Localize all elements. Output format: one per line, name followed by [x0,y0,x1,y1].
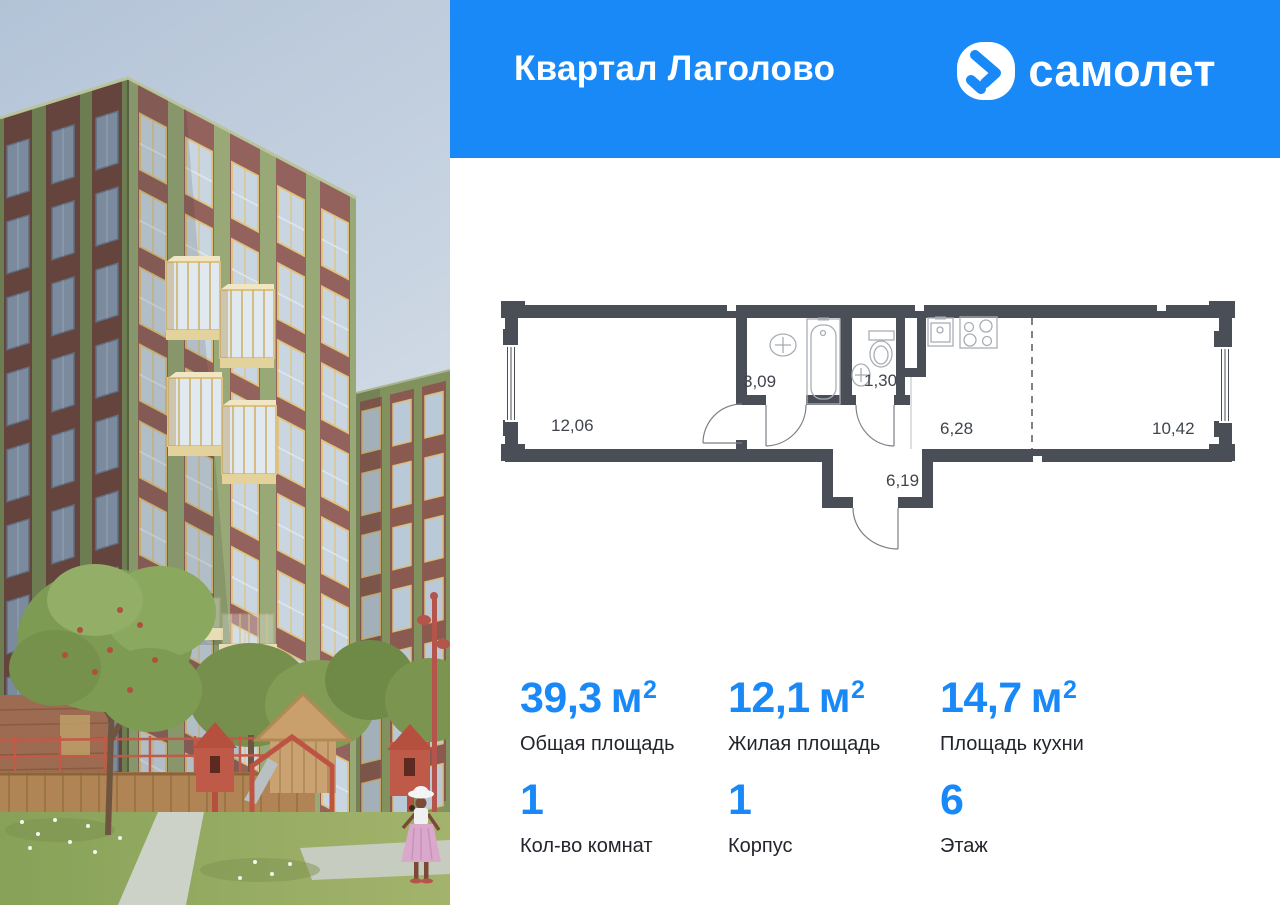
stat-floor-number: 6 Этаж [940,778,1140,858]
floor-plan-walls [501,301,1235,508]
bathroom-fixtures [770,319,894,404]
stat-rooms-count: 1 Кол-во комнат [520,778,720,858]
room-area-kitchen: 6,28 [940,419,973,438]
page-title: Квартал Лаголово [514,49,835,89]
stat-kitchen-area: 14,7м2 Площадь кухни [940,676,1140,756]
stat-total-area-label: Общая площадь [520,733,720,756]
stat-floor-number-label: Этаж [940,835,1140,858]
stat-floor-number-value: 6 [940,778,1140,823]
brand-name: самолет [1028,42,1216,100]
stat-building-number: 1 Корпус [728,778,928,858]
samolet-arrow-icon [957,42,1015,100]
room-area-labels: 12,06 3,09 1,30 6,28 10,42 6,19 [551,371,1195,490]
stat-rooms-count-value: 1 [520,778,720,823]
stat-living-area-value: 12,1м2 [728,676,928,721]
stat-total-area-value: 39,3м2 [520,676,720,721]
brand-logo: самолет [957,42,1216,100]
building-photo-illustration [0,0,450,905]
room-area-hallway: 6,19 [886,471,919,490]
room-area-room: 10,42 [1152,419,1195,438]
listing-panel: Квартал Лаголово самолет [450,0,1280,905]
stat-rooms-count-label: Кол-во комнат [520,835,720,858]
stat-total-area: 39,3м2 Общая площадь [520,676,720,756]
door-symbols [703,404,898,549]
room-area-toilet: 1,30 [864,371,897,390]
wall-notches [727,305,1166,462]
floor-plan: 12,06 3,09 1,30 6,28 10,42 6,19 [500,298,1240,560]
stat-kitchen-area-label: Площадь кухни [940,733,1140,756]
stat-living-area: 12,1м2 Жилая площадь [728,676,928,756]
stat-kitchen-area-value: 14,7м2 [940,676,1140,721]
header-banner: Квартал Лаголово самолет [450,0,1280,158]
apartment-listing-card[interactable]: Квартал Лаголово самолет [0,0,1280,905]
building-photo [0,0,450,905]
room-area-living: 12,06 [551,416,594,435]
stat-building-number-label: Корпус [728,835,928,858]
stat-living-area-label: Жилая площадь [728,733,928,756]
ground [0,812,450,905]
stat-building-number-value: 1 [728,778,928,823]
room-area-bathroom: 3,09 [743,372,776,391]
kitchen-fixtures [928,317,997,348]
